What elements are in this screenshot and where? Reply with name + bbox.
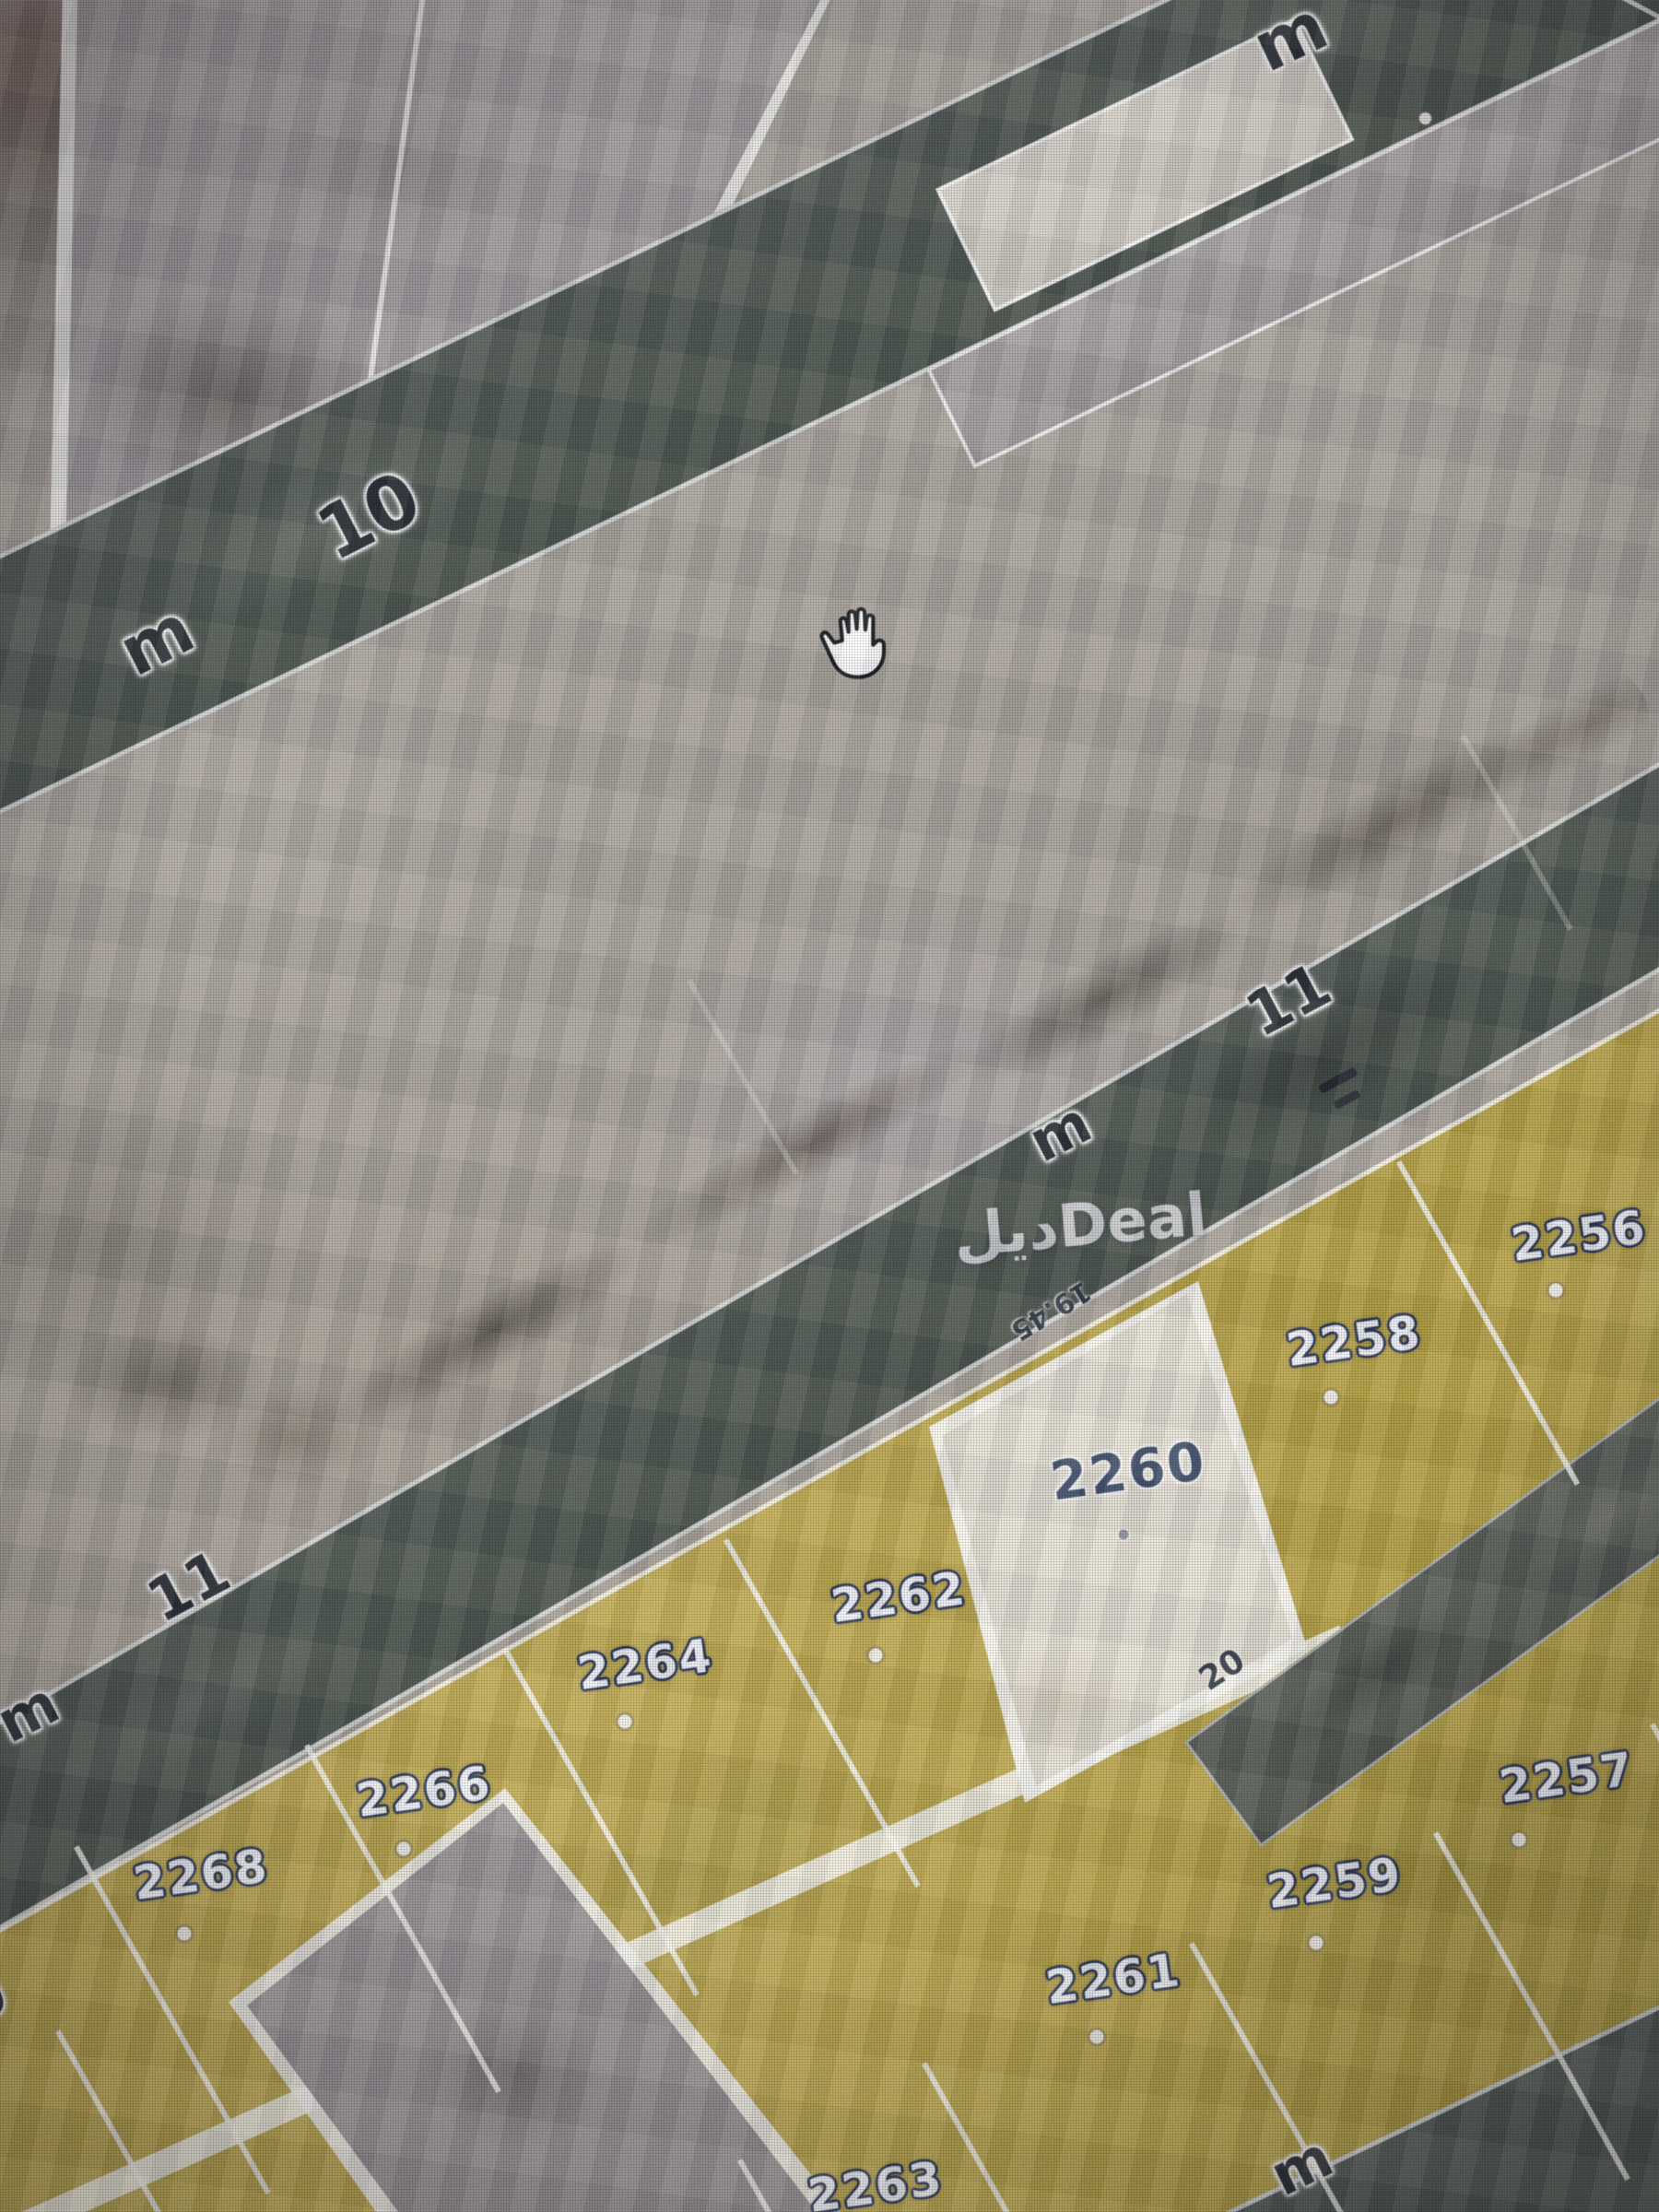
map-surface[interactable]: 10 m m 11 m 11 m m 0 19.45 20 2256 2258 … (0, 0, 1659, 2212)
screen-photo: 10 m m 11 m 11 m m 0 19.45 20 2256 2258 … (0, 0, 1659, 2212)
parcel-centroid-dot (1119, 1530, 1129, 1540)
parcel-centroid-dot (397, 1842, 411, 1856)
parcel-centroid-dot (1090, 2030, 1104, 2044)
parcel-centroid-dot (618, 1715, 632, 1729)
cursor-open-hand-icon (806, 586, 910, 695)
parcel-centroid-dot (1324, 1391, 1338, 1405)
parcel-centroid-dot (1549, 1284, 1563, 1298)
parcel-centroid-dot (1512, 1833, 1526, 1847)
parcel-centroid-dot (869, 1649, 883, 1663)
parcel-centroid-dot (1310, 1936, 1324, 1950)
map-point-dot (1419, 112, 1431, 124)
rubble-patch (55, 1272, 406, 1512)
parcel-centroid-dot (178, 1927, 192, 1941)
